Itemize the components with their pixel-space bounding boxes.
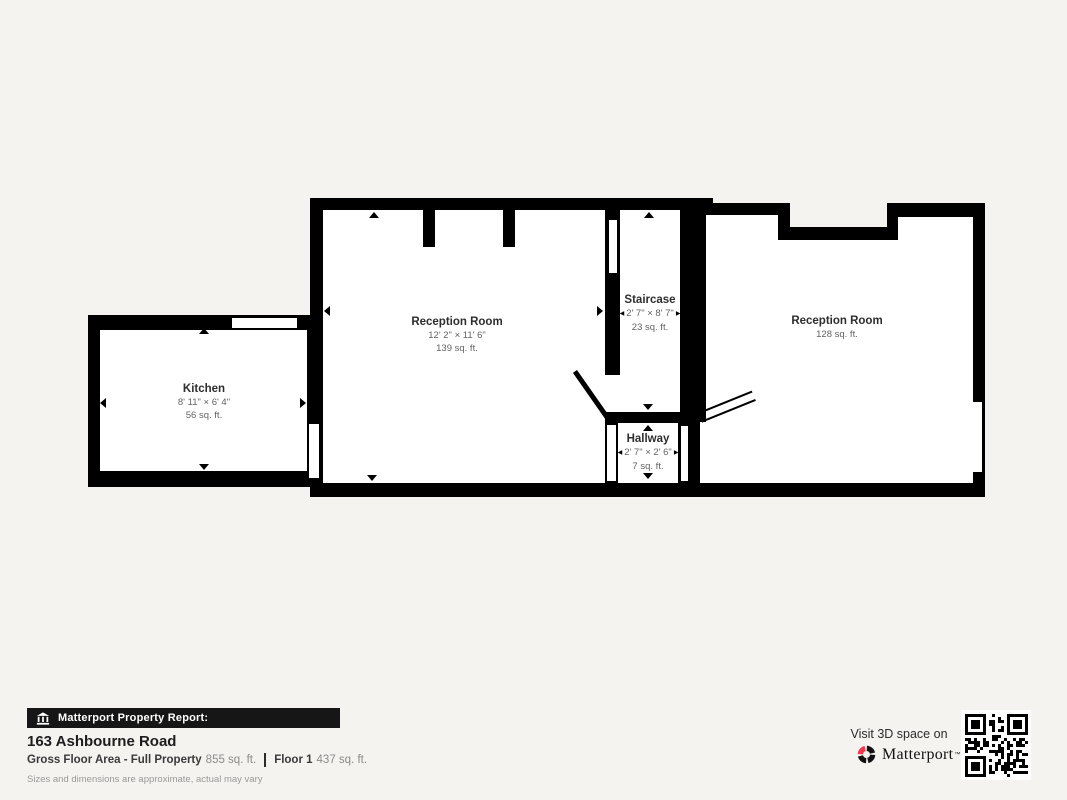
room-dimensions: 12' 2" × 11' 6": [411, 329, 502, 342]
room-name: Reception Room: [791, 314, 882, 328]
arrow-down-icon: [643, 473, 653, 479]
arrow-right-icon: ▶: [674, 311, 683, 317]
arrow-left-icon: ◀: [616, 450, 625, 456]
room-area: 56 sq. ft.: [178, 409, 230, 422]
matterport-wordmark: Matterport: [882, 746, 953, 764]
gross-floor-area-label: Gross Floor Area - Full Property: [27, 754, 202, 766]
room-area: 128 sq. ft.: [791, 328, 882, 341]
room-area: 139 sq. ft.: [411, 342, 502, 355]
room-name: Reception Room: [411, 315, 502, 329]
arrow-right-icon: [300, 398, 306, 408]
arrow-up-icon: [644, 212, 654, 218]
room-area: 7 sq. ft.: [616, 460, 681, 473]
arrow-up-icon: [369, 212, 379, 218]
floor-area-summary: Gross Floor Area - Full Property 855 sq.…: [27, 753, 367, 767]
floor-label: Floor 1: [274, 754, 312, 766]
qr-code: [961, 710, 1031, 780]
room-area: 23 sq. ft.: [618, 321, 683, 334]
gross-floor-area-value: 855 sq. ft.: [206, 754, 257, 766]
floorplan: Kitchen 8' 11" × 6' 4" 56 sq. ft. Recept…: [0, 0, 1067, 800]
room-dimensions: ◀2' 7" × 2' 6"▶: [616, 446, 681, 460]
matterport-logo: Matterport ™: [856, 744, 960, 765]
report-banner-label: Matterport Property Report:: [58, 712, 208, 724]
room-label-staircase: Staircase ◀2' 7" × 8' 7"▶ 23 sq. ft.: [618, 293, 683, 334]
matterport-pinwheel-icon: [856, 744, 877, 765]
kitchen-door-opening: [309, 424, 319, 478]
floor-reception-room-2-right: [898, 217, 973, 483]
arrow-up-icon: [199, 328, 209, 334]
room-label-reception-room-2: Reception Room 128 sq. ft.: [791, 314, 882, 341]
arrow-right-icon: [597, 306, 603, 316]
room-label-hallway: Hallway ◀2' 7" × 2' 6"▶ 7 sq. ft.: [616, 432, 681, 473]
visit-3d-space-text: Visit 3D space on: [849, 727, 949, 741]
floor-reception-room-2-doorway: [700, 422, 706, 483]
room-label-reception-room-1: Reception Room 12' 2" × 11' 6" 139 sq. f…: [411, 315, 502, 355]
exterior-notch: [790, 198, 887, 227]
arrow-right-icon: ▶: [672, 450, 681, 456]
disclaimer-text: Sizes and dimensions are approximate, ac…: [27, 774, 263, 785]
building-columns-icon: [36, 712, 50, 725]
arrow-left-icon: [100, 398, 106, 408]
room-dimensions: ◀2' 7" × 8' 7"▶: [618, 307, 683, 321]
room-dimensions: 8' 11" × 6' 4": [178, 396, 230, 409]
room-name: Hallway: [616, 432, 681, 446]
arrow-down-icon: [643, 404, 653, 410]
arrow-left-icon: ◀: [618, 311, 627, 317]
report-banner: Matterport Property Report:: [27, 708, 340, 728]
arrow-left-icon: [324, 306, 330, 316]
staircase-window: [609, 220, 617, 273]
property-address: 163 Ashbourne Road: [27, 733, 176, 750]
trademark-symbol: ™: [954, 752, 960, 758]
arrow-up-icon: [643, 425, 653, 431]
hallway-right-opening: [681, 426, 688, 481]
staircase-door-opening: [605, 375, 620, 412]
floor-reception-room-2-mid: [778, 240, 898, 483]
room-name: Staircase: [618, 293, 683, 307]
reception-room-2-window: [973, 402, 982, 472]
qr-code-pattern: [965, 714, 1028, 777]
arrow-down-icon: [199, 464, 209, 470]
kitchen-window: [232, 318, 297, 328]
arrow-down-icon: [367, 475, 377, 481]
wall-stub-1: [423, 210, 435, 247]
wall-stub-2: [503, 210, 515, 247]
separator: [264, 753, 266, 767]
room-name: Kitchen: [178, 382, 230, 396]
floor-value: 437 sq. ft.: [317, 754, 368, 766]
floor-reception-room-2-left: [706, 215, 778, 483]
room-label-kitchen: Kitchen 8' 11" × 6' 4" 56 sq. ft.: [178, 382, 230, 422]
